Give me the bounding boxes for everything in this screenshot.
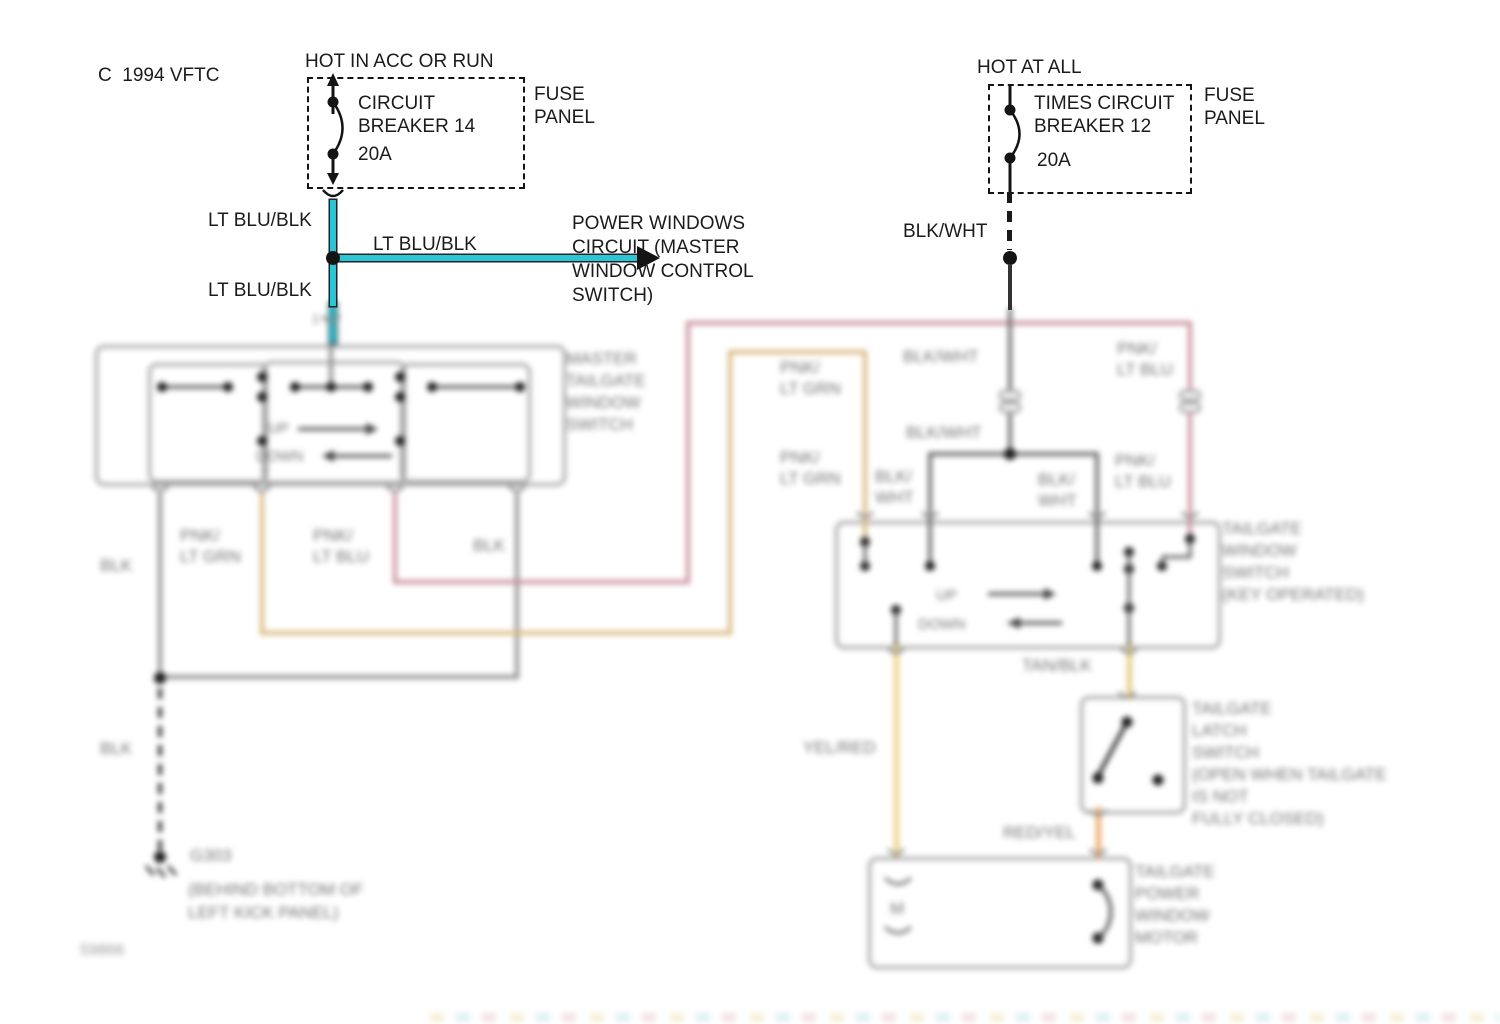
wire-label-blk-wht-feed: BLK/WHT: [903, 220, 987, 243]
branch-note: POWER WINDOWS CIRCUIT (MASTER WINDOW CON…: [572, 212, 754, 308]
junction-dot-right: [1003, 251, 1017, 265]
circuit-breaker-14-name: CIRCUIT BREAKER 14: [358, 92, 475, 138]
wire-label-lt-blu-blk-lower: LT BLU/BLK: [208, 279, 312, 302]
wiring-diagram-canvas: MASTER TAILGATE WINDOW SWITCH 1 UP DOWN …: [0, 0, 1500, 1024]
sharp-region: C 1994 VFTC HOT IN ACC OR RUN CIRCUIT BR…: [0, 0, 1500, 1024]
junction-dot-left: [326, 251, 340, 265]
fuse-panel-label-left: FUSE PANEL: [534, 83, 595, 129]
wire-label-lt-blu-blk-branch: LT BLU/BLK: [373, 233, 477, 256]
circuit-breaker-12-symbol: [990, 82, 1030, 194]
circuit-breaker-14-symbol: [313, 70, 353, 206]
fuse-panel-label-right: FUSE PANEL: [1204, 84, 1265, 130]
circuit-breaker-14-rating: 20A: [358, 143, 392, 166]
hot-at-all-label: HOT AT ALL: [977, 56, 1082, 79]
circuit-breaker-12-name: TIMES CIRCUIT BREAKER 12: [1034, 92, 1174, 138]
wire-label-lt-blu-blk-upper: LT BLU/BLK: [208, 209, 312, 232]
wire-blk-wht-solid: [1008, 264, 1012, 310]
diagram-code: C 1994 VFTC: [98, 64, 219, 87]
wire-blk-wht-dashed: [1007, 192, 1012, 250]
circuit-breaker-12-rating: 20A: [1037, 149, 1071, 172]
